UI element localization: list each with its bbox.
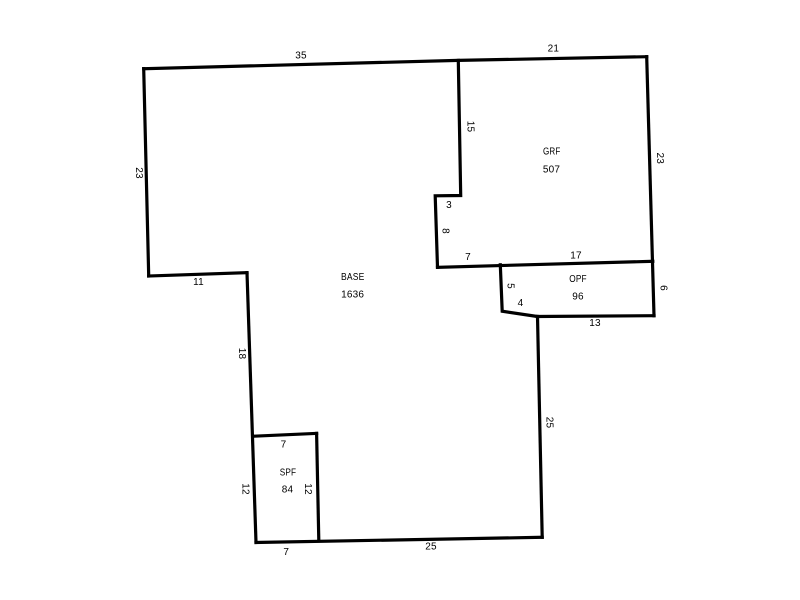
svg-text:35: 35 bbox=[295, 50, 307, 61]
svg-text:SPF: SPF bbox=[280, 467, 297, 478]
svg-text:3: 3 bbox=[446, 200, 452, 211]
svg-text:13: 13 bbox=[589, 318, 601, 329]
svg-text:15: 15 bbox=[465, 121, 476, 133]
svg-text:25: 25 bbox=[544, 417, 555, 429]
svg-text:25: 25 bbox=[425, 541, 437, 552]
svg-text:84: 84 bbox=[282, 485, 294, 496]
svg-text:1636: 1636 bbox=[341, 290, 364, 301]
svg-text:GRF: GRF bbox=[543, 147, 561, 158]
svg-text:8: 8 bbox=[440, 228, 451, 234]
svg-text:11: 11 bbox=[193, 277, 204, 288]
svg-text:12: 12 bbox=[240, 483, 251, 495]
svg-text:23: 23 bbox=[133, 167, 144, 179]
svg-text:7: 7 bbox=[283, 547, 289, 558]
svg-text:7: 7 bbox=[281, 439, 287, 450]
svg-text:12: 12 bbox=[302, 483, 313, 495]
svg-text:5: 5 bbox=[505, 283, 516, 289]
svg-text:21: 21 bbox=[548, 44, 560, 55]
svg-text:OPF: OPF bbox=[569, 274, 587, 285]
svg-text:96: 96 bbox=[572, 292, 584, 303]
svg-text:17: 17 bbox=[570, 250, 582, 261]
svg-text:18: 18 bbox=[236, 348, 247, 360]
svg-text:7: 7 bbox=[465, 252, 471, 263]
svg-text:BASE: BASE bbox=[341, 272, 365, 283]
svg-text:6: 6 bbox=[658, 285, 669, 291]
svg-text:4: 4 bbox=[518, 298, 524, 309]
svg-text:507: 507 bbox=[543, 165, 561, 176]
svg-text:23: 23 bbox=[654, 153, 665, 165]
